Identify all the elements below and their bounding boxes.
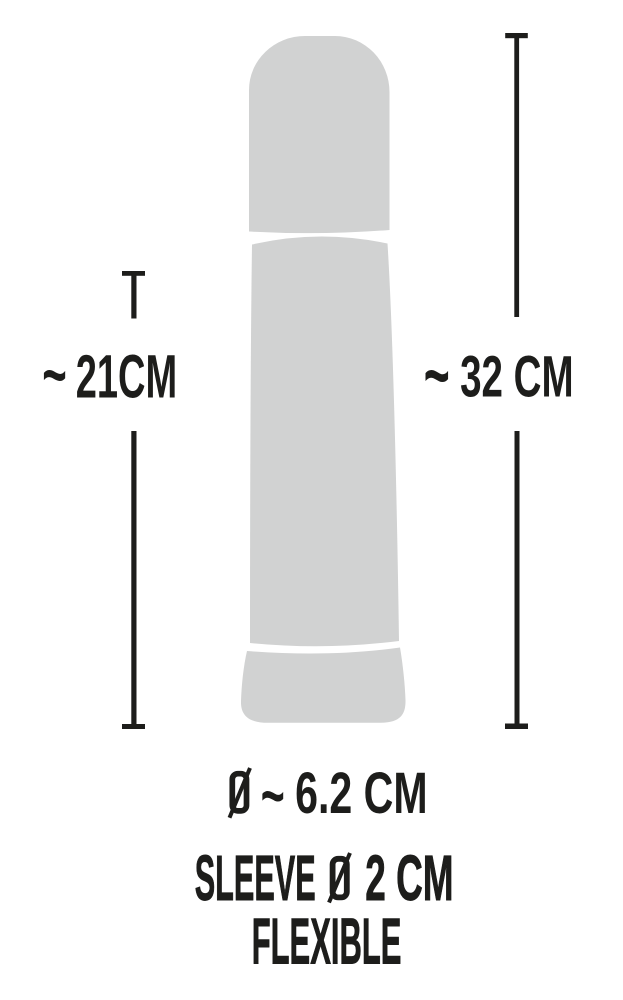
svg-text:SLEEVE: SLEEVE [195,842,316,914]
svg-text:~: ~ [261,759,285,832]
svg-text:FLEXIBLE: FLEXIBLE [252,905,402,978]
svg-text:6.2 CM: 6.2 CM [295,761,428,826]
svg-text:~: ~ [42,335,67,413]
svg-text:~: ~ [424,333,450,418]
svg-text:21CM: 21CM [76,343,177,411]
svg-text:2 CM: 2 CM [365,842,453,914]
svg-text:32 CM: 32 CM [460,345,574,410]
